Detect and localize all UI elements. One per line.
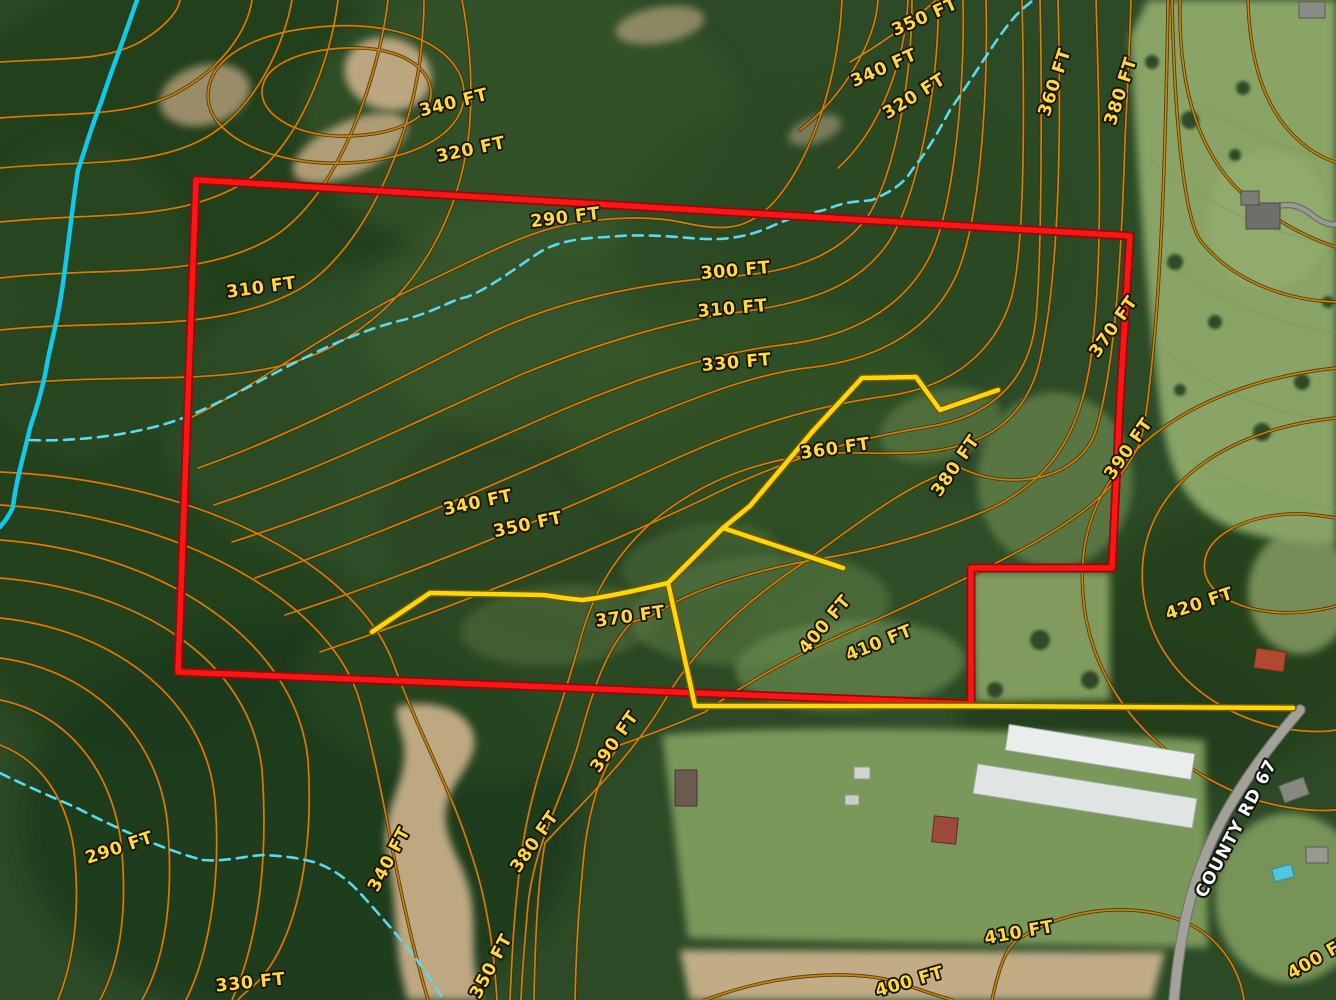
tree-clump — [1174, 384, 1186, 396]
tree-clump — [1030, 630, 1050, 650]
tree-clump — [1236, 81, 1250, 95]
tree-clump — [1229, 149, 1241, 161]
building — [675, 770, 697, 806]
building — [854, 767, 870, 779]
building — [1241, 191, 1259, 205]
tree-clump — [1081, 671, 1099, 689]
building — [845, 795, 859, 805]
building — [1246, 203, 1280, 229]
map-canvas[interactable]: 340 FT320 FT350 FT340 FT320 FT360 FT380 … — [0, 0, 1336, 1000]
building — [932, 816, 959, 844]
tree-clump — [1294, 374, 1310, 390]
tree-clump — [1208, 315, 1222, 329]
tree-clump — [987, 682, 1003, 698]
tree-clump — [1167, 254, 1183, 270]
building — [1306, 847, 1328, 863]
topo-aerial-map: 340 FT320 FT350 FT340 FT320 FT360 FT380 … — [0, 0, 1336, 1000]
building — [1254, 648, 1286, 672]
building — [1299, 2, 1325, 18]
tree-clump — [1145, 55, 1159, 69]
